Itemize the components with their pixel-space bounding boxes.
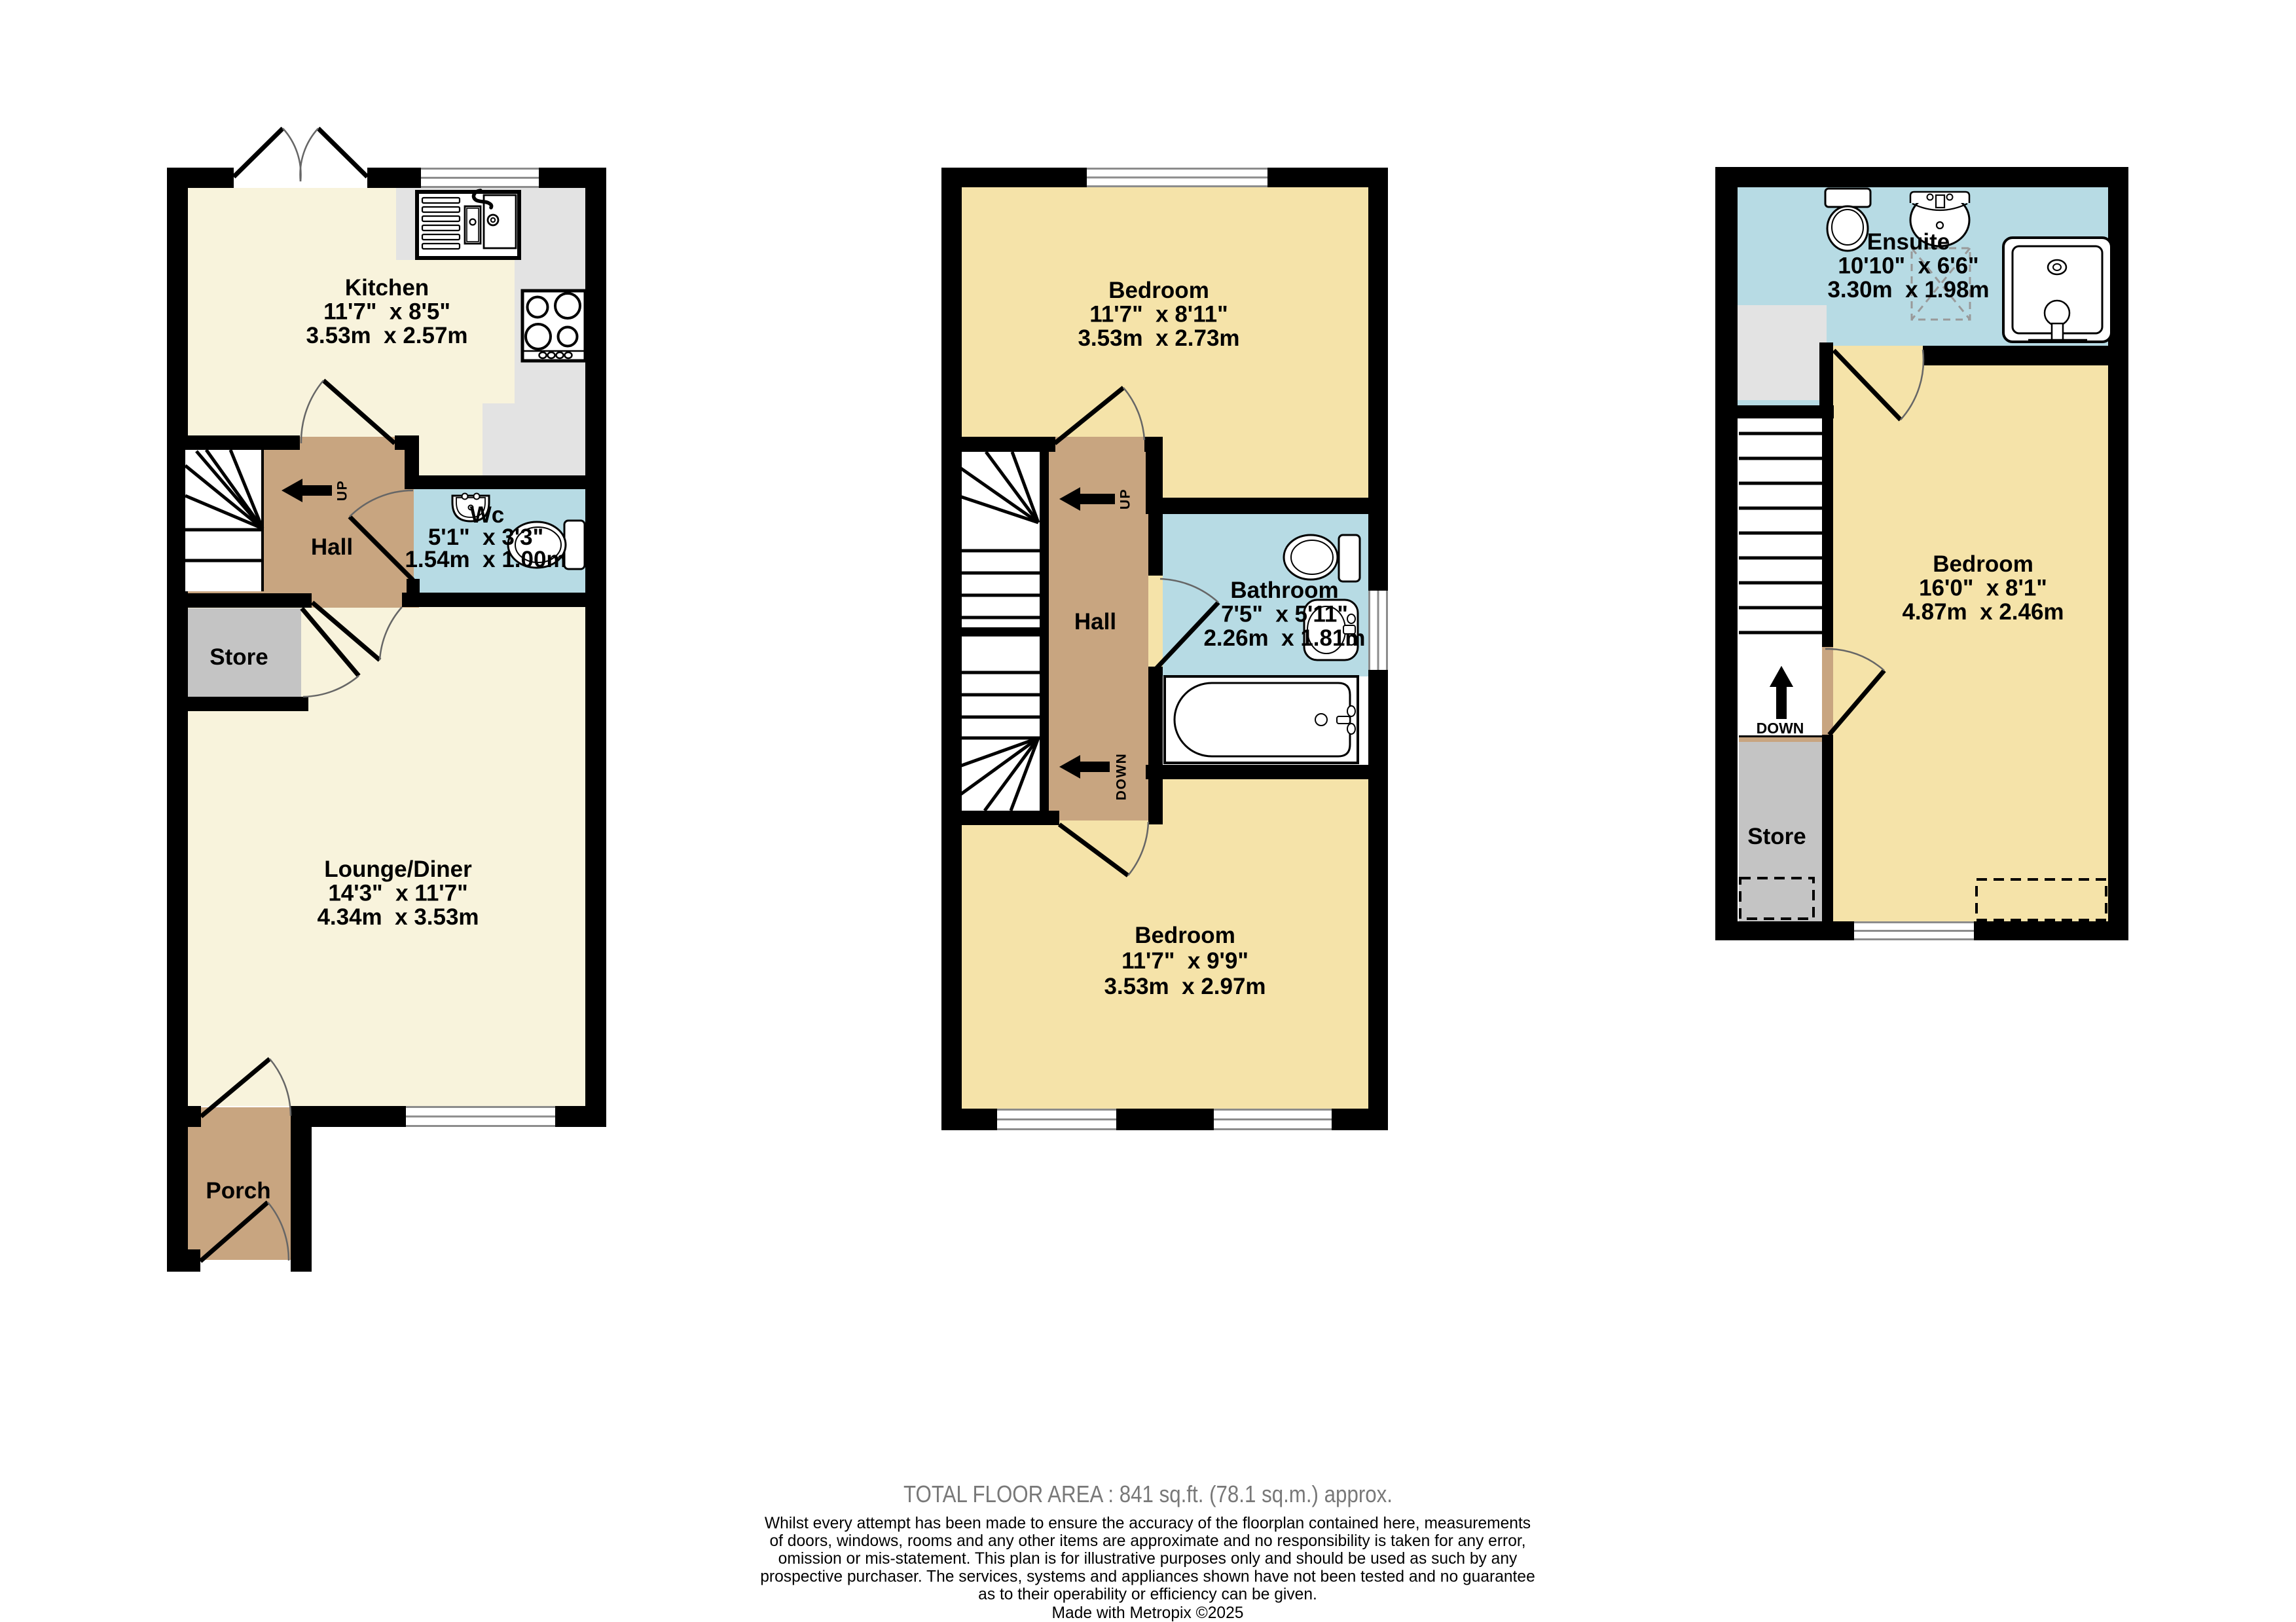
- svg-text:Bedroom: Bedroom: [1933, 551, 2033, 577]
- svg-text:3.53m x 2.73m: 3.53m x 2.73m: [1078, 325, 1239, 351]
- svg-text:Bedroom: Bedroom: [1108, 278, 1209, 303]
- svg-text:2.26m x 1.81m: 2.26m x 1.81m: [1203, 625, 1365, 651]
- svg-text:11'7" x 8'11": 11'7" x 8'11": [1089, 302, 1228, 327]
- svg-text:prospective purchaser. The ser: prospective purchaser. The services, sys…: [760, 1568, 1535, 1586]
- svg-text:UP: UP: [335, 480, 350, 501]
- svg-text:Bathroom: Bathroom: [1230, 578, 1338, 603]
- svg-text:as to their operability or eff: as to their operability or efficiency ca…: [978, 1586, 1317, 1604]
- svg-text:11'7" x 9'9": 11'7" x 9'9": [1121, 948, 1248, 974]
- svg-text:10'10" x 6'6": 10'10" x 6'6": [1838, 253, 1978, 279]
- svg-text:Store: Store: [210, 644, 268, 670]
- svg-text:Bedroom: Bedroom: [1135, 923, 1235, 948]
- svg-text:3.30m x 1.98m: 3.30m x 1.98m: [1827, 277, 1989, 303]
- svg-text:UP: UP: [1118, 488, 1133, 509]
- svg-text:Hall: Hall: [1074, 609, 1116, 635]
- svg-text:Ensuite: Ensuite: [1867, 229, 1950, 255]
- svg-text:14'3" x 11'7": 14'3" x 11'7": [328, 881, 467, 906]
- svg-text:DOWN: DOWN: [1114, 753, 1129, 801]
- svg-text:TOTAL FLOOR AREA : 841 sq.ft.: TOTAL FLOOR AREA : 841 sq.ft. (78.1 sq.m…: [903, 1481, 1393, 1507]
- svg-text:of doors, windows, rooms and a: of doors, windows, rooms and any other i…: [769, 1532, 1525, 1550]
- svg-text:Made with Metropix ©2025: Made with Metropix ©2025: [1052, 1604, 1244, 1622]
- svg-text:DOWN: DOWN: [1757, 720, 1804, 737]
- svg-text:omission or mis-statement. Thi: omission or mis-statement. This plan is …: [778, 1550, 1518, 1568]
- svg-text:4.87m x 2.46m: 4.87m x 2.46m: [1902, 599, 2064, 625]
- svg-text:1.54m x 1.00m: 1.54m x 1.00m: [405, 547, 566, 572]
- svg-text:Whilst every attempt has been: Whilst every attempt has been made to en…: [765, 1515, 1531, 1532]
- svg-text:Kitchen: Kitchen: [345, 275, 429, 301]
- svg-text:4.34m x 3.53m: 4.34m x 3.53m: [317, 904, 479, 930]
- svg-text:Hall: Hall: [311, 534, 353, 560]
- svg-text:Lounge/Diner: Lounge/Diner: [324, 857, 472, 882]
- svg-text:16'0" x 8'1": 16'0" x 8'1": [1919, 576, 2047, 601]
- svg-text:Porch: Porch: [206, 1178, 270, 1204]
- svg-text:3.53m x 2.97m: 3.53m x 2.97m: [1104, 974, 1266, 999]
- svg-text:7'5" x 5'11": 7'5" x 5'11": [1221, 602, 1348, 627]
- svg-text:3.53m x 2.57m: 3.53m x 2.57m: [306, 323, 467, 348]
- svg-text:Store: Store: [1747, 824, 1806, 849]
- svg-text:11'7" x 8'5": 11'7" x 8'5": [323, 299, 450, 325]
